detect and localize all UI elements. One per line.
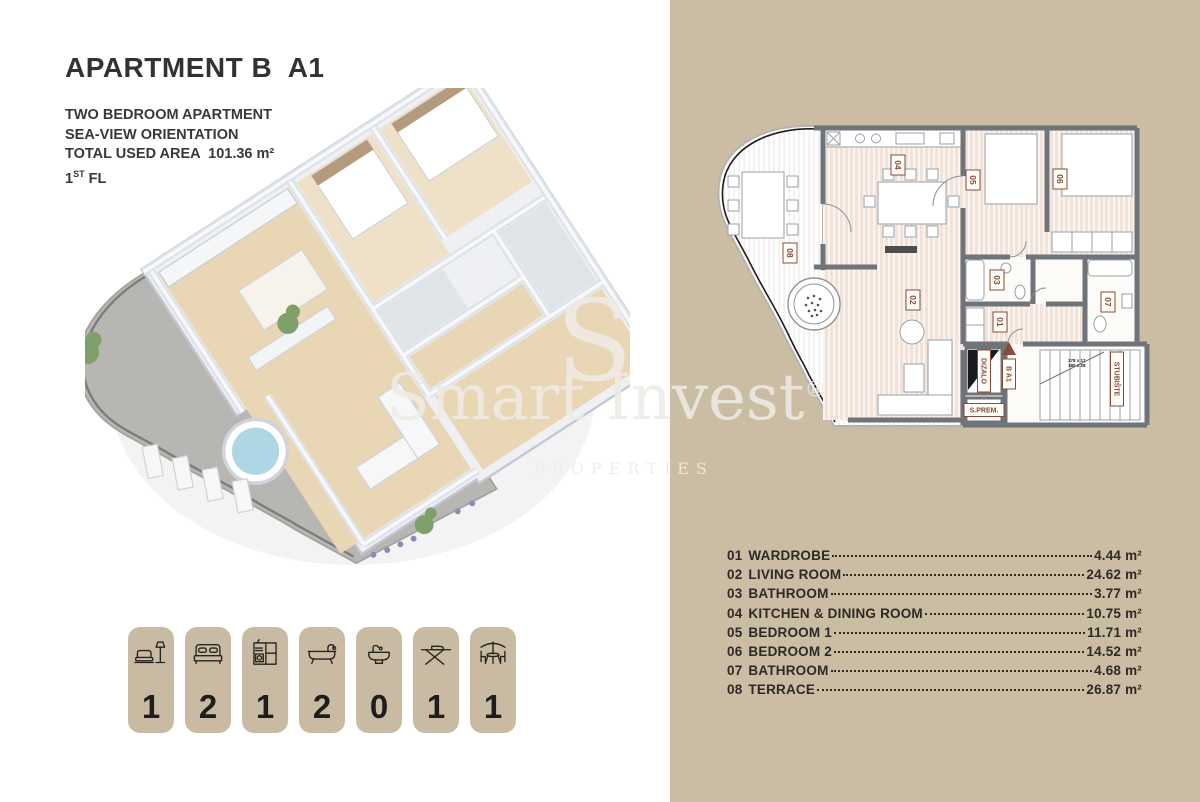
dining-table bbox=[878, 182, 946, 224]
room-area: 11.71 m² bbox=[1087, 625, 1142, 640]
room-number-wardrobe: 01 bbox=[995, 317, 1005, 327]
apartment-2d-floorplan: 08 04 05 06 02 03 01 07 DIZALO B A1 S.PR… bbox=[700, 112, 1160, 442]
page-title: APARTMENT B A1 bbox=[65, 52, 325, 84]
amenity-count: 2 bbox=[199, 690, 217, 723]
room-area: 14.52 m² bbox=[1086, 644, 1142, 659]
room-name: LIVING ROOM bbox=[748, 567, 841, 582]
room-number: 05 bbox=[727, 625, 742, 640]
room-name: BATHROOM bbox=[748, 663, 828, 678]
summary-line-floor: 1ST FL bbox=[65, 165, 325, 189]
header: APARTMENT B A1 TWO BEDROOM APARTMENT SEA… bbox=[65, 52, 325, 189]
room-number: 04 bbox=[727, 606, 742, 621]
room-number: 03 bbox=[727, 586, 742, 601]
room-area: 4.68 m² bbox=[1094, 663, 1142, 678]
amenity-badge-bathtubs: 2 bbox=[299, 627, 345, 733]
amenity-badge-ironing: 1 bbox=[413, 627, 459, 733]
bed-2 bbox=[1062, 134, 1132, 196]
room-row: 05BEDROOM 111.71 m² bbox=[727, 625, 1142, 644]
dotted-leader bbox=[831, 593, 1093, 595]
summary-line-bedrooms: TWO BEDROOM APARTMENT bbox=[65, 106, 325, 126]
room-number: 01 bbox=[727, 548, 742, 563]
apartment-summary: TWO BEDROOM APARTMENT SEA-VIEW ORIENTATI… bbox=[65, 106, 325, 189]
jacuzzi bbox=[788, 278, 840, 330]
amenity-badges: 1 2 1 2 0 1 bbox=[128, 627, 516, 733]
kitchen-unit-icon bbox=[248, 639, 282, 669]
room-area: 10.75 m² bbox=[1086, 606, 1142, 621]
room-number: 06 bbox=[727, 644, 742, 659]
room-area: 26.87 m² bbox=[1086, 682, 1142, 697]
room-row: 06BEDROOM 214.52 m² bbox=[727, 644, 1142, 663]
room-name: BATHROOM bbox=[748, 586, 828, 601]
staircase-label: STUBIŠTE bbox=[1113, 362, 1122, 397]
room-number-living: 02 bbox=[908, 295, 918, 305]
patio-table-icon bbox=[476, 639, 510, 669]
room-area-list: 01WARDROBE4.44 m² 02LIVING ROOM24.62 m² … bbox=[727, 548, 1142, 702]
room-number: 08 bbox=[727, 682, 742, 697]
amenity-badge-washbasin: 0 bbox=[356, 627, 402, 733]
summary-line-orientation: SEA-VIEW ORIENTATION bbox=[65, 126, 325, 146]
room-number-bedroom1: 05 bbox=[968, 175, 978, 185]
closet-floor bbox=[1033, 257, 1085, 304]
elevator-label: DIZALO bbox=[980, 358, 987, 385]
summary-line-area: TOTAL USED AREA 101.36 m² bbox=[65, 145, 325, 165]
amenity-badge-terrace: 1 bbox=[470, 627, 516, 733]
bathtub-1 bbox=[966, 260, 984, 300]
amenity-count: 1 bbox=[427, 690, 445, 723]
room-number-kitchen: 04 bbox=[893, 160, 903, 170]
dotted-leader bbox=[817, 689, 1084, 691]
room-name: WARDROBE bbox=[748, 548, 830, 563]
amenity-count: 0 bbox=[370, 690, 388, 723]
amenity-count: 2 bbox=[313, 690, 331, 723]
room-number-terrace: 08 bbox=[785, 248, 795, 258]
amenity-count: 1 bbox=[142, 690, 160, 723]
room-name: KITCHEN & DINING ROOM bbox=[748, 606, 922, 621]
dotted-leader bbox=[843, 574, 1084, 576]
bed-1 bbox=[985, 134, 1037, 204]
room-row: 04KITCHEN & DINING ROOM10.75 m² bbox=[727, 606, 1142, 625]
room-row: 01WARDROBE4.44 m² bbox=[727, 548, 1142, 567]
room-name: BEDROOM 1 bbox=[748, 625, 832, 640]
amenity-badge-living: 1 bbox=[128, 627, 174, 733]
dotted-leader bbox=[834, 632, 1085, 634]
room-row: 03BATHROOM3.77 m² bbox=[727, 586, 1142, 605]
terrace-table bbox=[742, 172, 784, 238]
bathtub-icon bbox=[305, 639, 339, 669]
unit-label: B A1 bbox=[1005, 366, 1012, 382]
room-number: 07 bbox=[727, 663, 742, 678]
room-number: 02 bbox=[727, 567, 742, 582]
sofa-lamp-icon bbox=[134, 639, 168, 669]
amenity-badge-bedrooms: 2 bbox=[185, 627, 231, 733]
amenity-badge-kitchen: 1 bbox=[242, 627, 288, 733]
room-number-bathroom2: 07 bbox=[1103, 297, 1113, 307]
ironing-board-icon bbox=[419, 639, 453, 669]
coffee-table bbox=[900, 320, 924, 344]
amenity-count: 1 bbox=[256, 690, 274, 723]
room-area: 3.77 m² bbox=[1094, 586, 1142, 601]
staircase bbox=[1040, 350, 1140, 420]
stair-dimension-2: 180 x 28 bbox=[1068, 363, 1086, 368]
room-row: 08TERRACE26.87 m² bbox=[727, 682, 1142, 701]
washbasin-icon bbox=[362, 639, 396, 669]
amenity-count: 1 bbox=[484, 690, 502, 723]
room-area: 24.62 m² bbox=[1086, 567, 1142, 582]
room-name: TERRACE bbox=[748, 682, 815, 697]
room-row: 02LIVING ROOM24.62 m² bbox=[727, 567, 1142, 586]
sofa bbox=[878, 395, 952, 415]
room-row: 07BATHROOM4.68 m² bbox=[727, 663, 1142, 682]
dotted-leader bbox=[834, 651, 1084, 653]
dotted-leader bbox=[831, 670, 1093, 672]
room-name: BEDROOM 2 bbox=[748, 644, 832, 659]
storage-label: S.PREM. bbox=[970, 408, 999, 415]
bathtub-2 bbox=[1088, 260, 1132, 276]
room-number-bedroom2: 06 bbox=[1055, 174, 1065, 184]
dotted-leader bbox=[832, 555, 1092, 557]
room-area: 4.44 m² bbox=[1094, 548, 1142, 563]
kitchen-island bbox=[885, 246, 917, 253]
double-bed-icon bbox=[191, 639, 225, 669]
room-number-bathroom1: 03 bbox=[992, 275, 1002, 285]
dotted-leader bbox=[925, 613, 1084, 615]
